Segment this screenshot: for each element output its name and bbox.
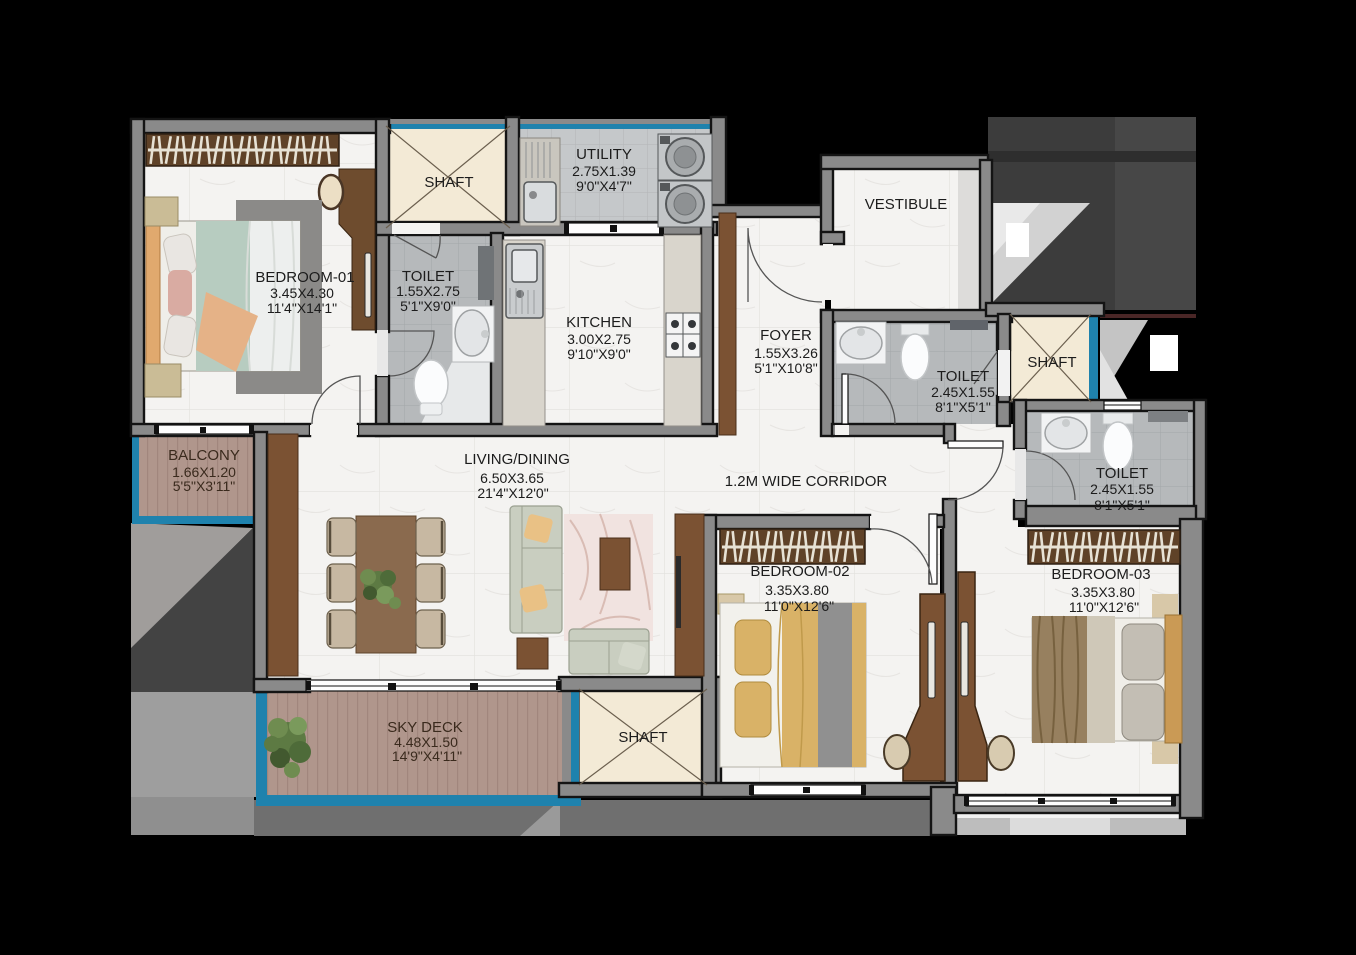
svg-text:8'1"X5'1": 8'1"X5'1" <box>1094 497 1150 513</box>
svg-text:BALCONY: BALCONY <box>168 447 240 464</box>
svg-text:5'1"X9'0": 5'1"X9'0" <box>400 298 456 314</box>
svg-text:3.00X2.75: 3.00X2.75 <box>567 331 631 347</box>
svg-text:2.45X1.55: 2.45X1.55 <box>1090 481 1154 497</box>
svg-text:BEDROOM-02: BEDROOM-02 <box>750 563 849 580</box>
svg-text:3.45X4.30: 3.45X4.30 <box>270 285 334 301</box>
svg-text:11'4"X14'1": 11'4"X14'1" <box>267 300 337 316</box>
svg-text:FOYER: FOYER <box>760 327 812 344</box>
svg-text:VESTIBULE: VESTIBULE <box>865 196 948 213</box>
svg-text:11'0"X12'6": 11'0"X12'6" <box>764 598 834 614</box>
svg-text:14'9"X4'11": 14'9"X4'11" <box>392 748 462 764</box>
svg-text:2.75X1.39: 2.75X1.39 <box>572 163 636 179</box>
svg-text:8'1"X5'1": 8'1"X5'1" <box>935 399 991 415</box>
svg-text:1.2M WIDE CORRIDOR: 1.2M WIDE CORRIDOR <box>725 473 888 490</box>
svg-text:1.55X2.75: 1.55X2.75 <box>396 283 460 299</box>
svg-text:SHAFT: SHAFT <box>1027 354 1076 371</box>
svg-text:SHAFT: SHAFT <box>424 174 473 191</box>
svg-text:BEDROOM-01: BEDROOM-01 <box>255 269 354 286</box>
svg-text:UTILITY: UTILITY <box>576 146 632 163</box>
svg-text:9'0"X4'7": 9'0"X4'7" <box>576 178 632 194</box>
svg-text:SHAFT: SHAFT <box>618 729 667 746</box>
svg-text:5'5"X3'11": 5'5"X3'11" <box>173 478 236 494</box>
svg-text:9'10"X9'0": 9'10"X9'0" <box>567 346 631 362</box>
svg-text:3.35X3.80: 3.35X3.80 <box>765 582 829 598</box>
svg-text:LIVING/DINING: LIVING/DINING <box>464 451 570 468</box>
svg-text:6.50X3.65: 6.50X3.65 <box>480 470 544 486</box>
svg-text:BEDROOM-03: BEDROOM-03 <box>1051 566 1150 583</box>
svg-text:KITCHEN: KITCHEN <box>566 314 632 331</box>
svg-text:1.55X3.26: 1.55X3.26 <box>754 345 818 361</box>
svg-text:11'0"X12'6": 11'0"X12'6" <box>1069 599 1139 615</box>
svg-text:5'1"X10'8": 5'1"X10'8" <box>754 360 818 376</box>
svg-text:2.45X1.55: 2.45X1.55 <box>931 384 995 400</box>
svg-text:21'4"X12'0": 21'4"X12'0" <box>477 485 548 501</box>
svg-text:3.35X3.80: 3.35X3.80 <box>1071 584 1135 600</box>
svg-text:TOILET: TOILET <box>937 368 989 385</box>
svg-text:TOILET: TOILET <box>1096 465 1148 482</box>
